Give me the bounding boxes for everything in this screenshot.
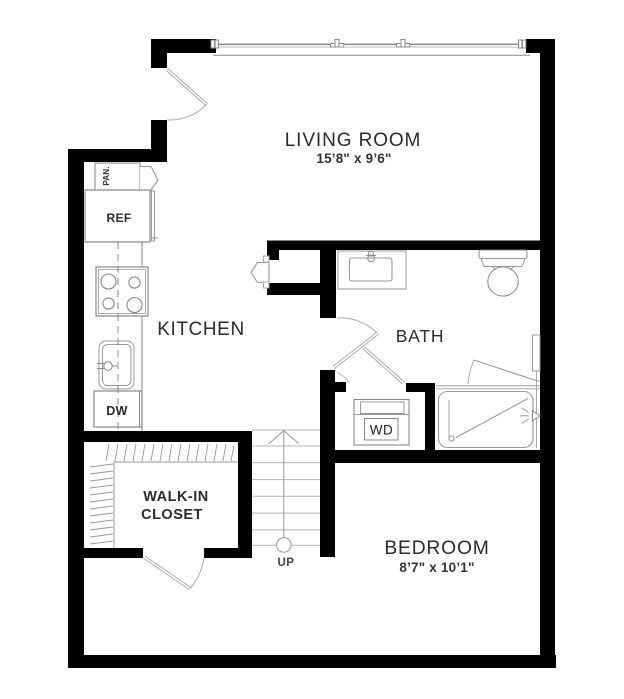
svg-text:8’7" x 10’1": 8’7" x 10’1"	[399, 560, 474, 575]
svg-text:BATH: BATH	[396, 326, 445, 346]
svg-text:CLOSET: CLOSET	[141, 507, 203, 523]
svg-text:PAN.: PAN.	[101, 166, 111, 185]
svg-text:WD: WD	[370, 423, 394, 438]
svg-text:DW: DW	[106, 404, 127, 418]
svg-text:KITCHEN: KITCHEN	[157, 319, 245, 340]
svg-text:BEDROOM: BEDROOM	[384, 538, 489, 559]
svg-text:LIVING ROOM: LIVING ROOM	[285, 130, 422, 151]
svg-text:REF: REF	[107, 211, 132, 225]
svg-text:15’8" x 9’6": 15’8" x 9’6"	[316, 151, 391, 166]
svg-text:WALK-IN: WALK-IN	[143, 489, 209, 505]
svg-text:UP: UP	[278, 557, 295, 569]
